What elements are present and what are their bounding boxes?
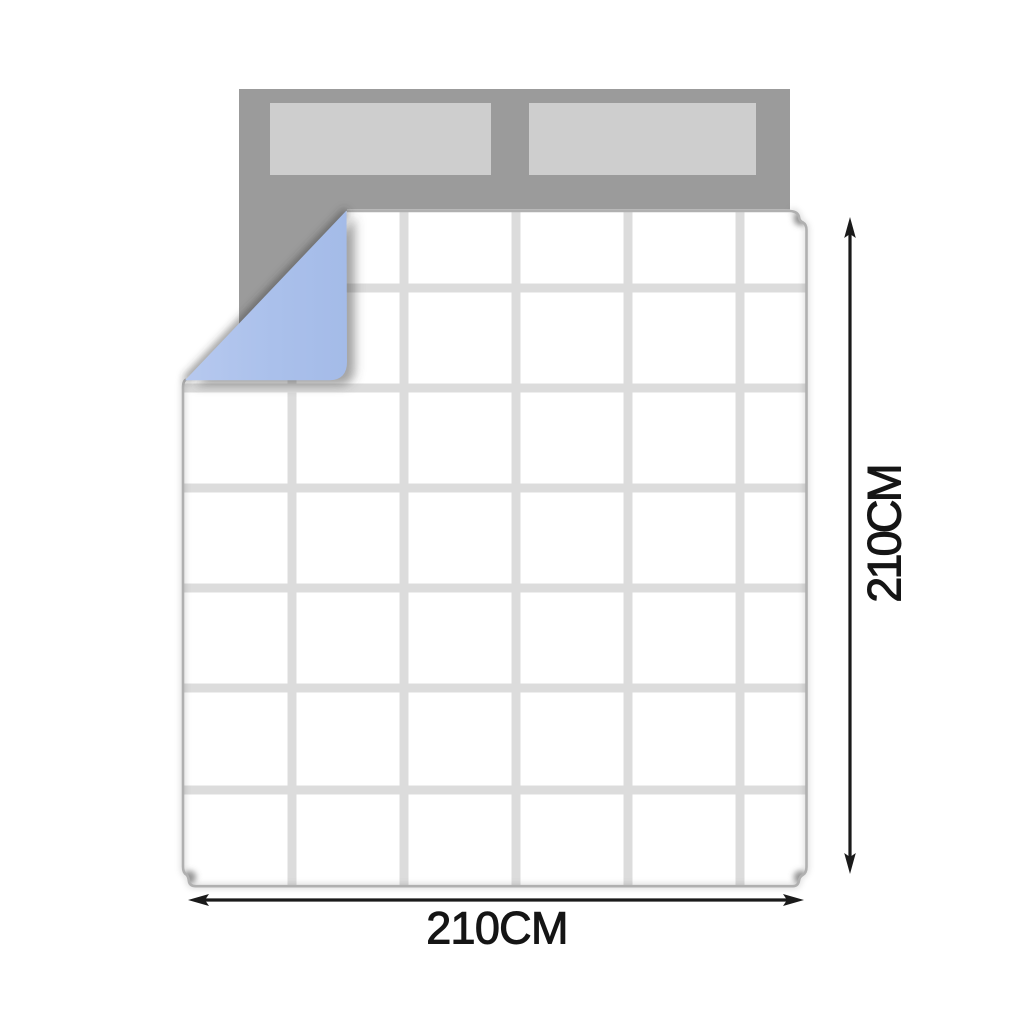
svg-text:210CM: 210CM xyxy=(426,903,568,954)
svg-text:210CM: 210CM xyxy=(858,466,911,603)
